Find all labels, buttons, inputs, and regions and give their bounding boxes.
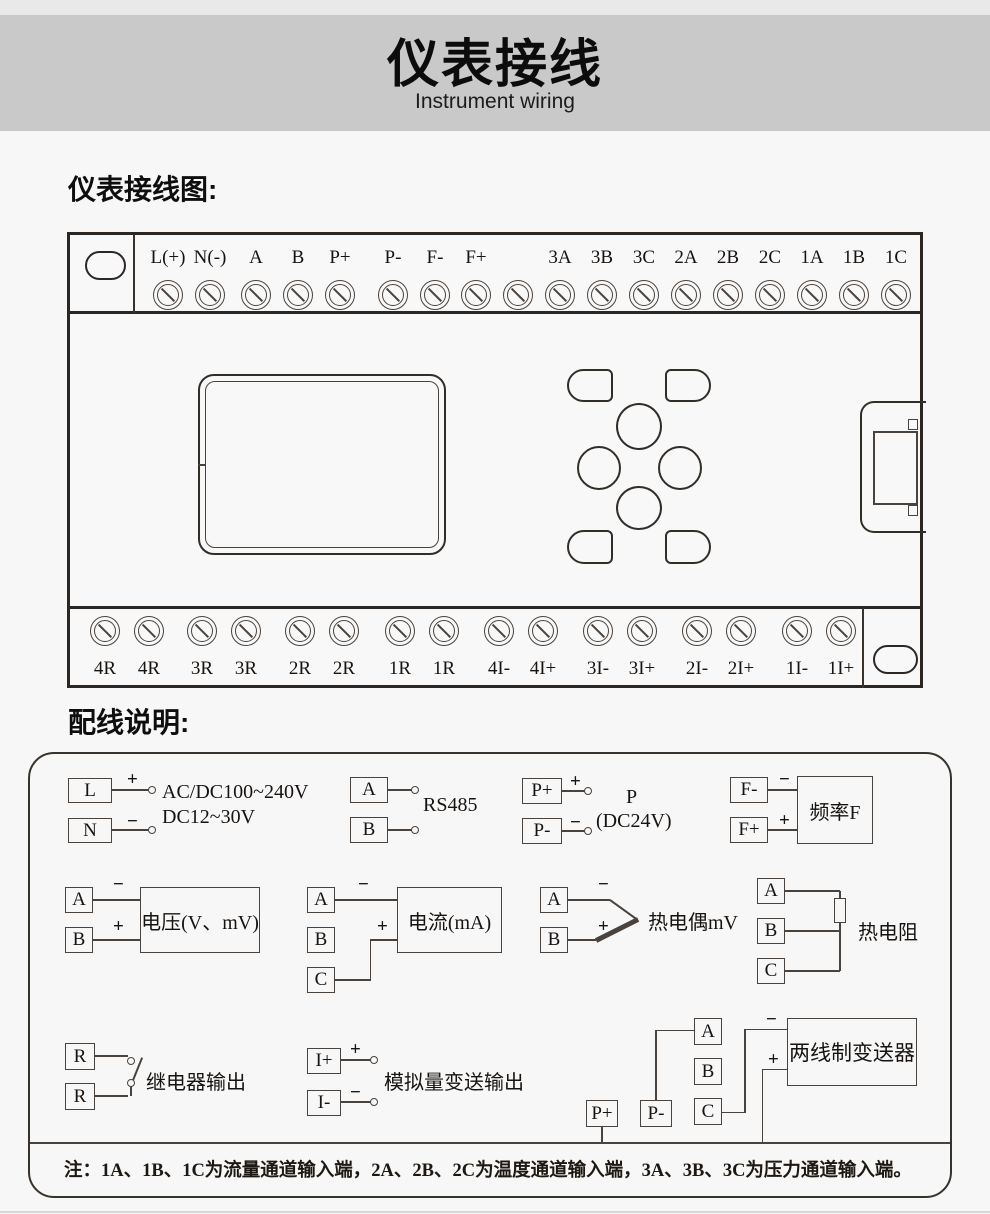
terminal-label: 1C (873, 247, 919, 269)
terminal-screw-icon (241, 280, 271, 310)
wire (371, 939, 397, 941)
wire-node (370, 1098, 378, 1106)
terminal-label: 4R (82, 658, 128, 680)
device-outline: L(+)N(-)ABP+P-F-F+3A3B3C2A2B2C1A1B1C 4R4… (67, 232, 923, 688)
terminal-box-label: C (315, 969, 328, 991)
terminal-screw-icon (195, 280, 225, 310)
terminal-box-label: A (701, 1021, 715, 1043)
terminal-label: 2A (663, 247, 709, 269)
device-box-label: 两线制变送器 (789, 1037, 915, 1067)
key-bottom-right-button (665, 530, 711, 564)
terminal-screw-icon (587, 280, 617, 310)
power-out-voltage: (DC24V) (596, 810, 672, 833)
plus-sign: + (127, 770, 138, 789)
terminal-label: 3C (621, 247, 667, 269)
rs485-label: RS485 (423, 794, 477, 817)
wire (655, 1030, 695, 1032)
terminal-box-B: B (307, 927, 335, 953)
terminal-label: P- (370, 247, 416, 269)
terminal-label: F+ (453, 247, 499, 269)
terminal-label: 1I- (774, 658, 820, 680)
mounting-hole-top (85, 251, 126, 280)
terminal-box-label: F+ (738, 819, 759, 841)
terminal-box-A: A (694, 1018, 722, 1045)
terminal-label: 1R (421, 658, 467, 680)
key-top-right-button (665, 369, 711, 402)
terminal-screw-icon (378, 280, 408, 310)
terminal-label: 4I- (476, 658, 522, 680)
wire (95, 1095, 128, 1097)
terminal-box-label: C (765, 960, 778, 982)
wire (785, 930, 840, 932)
minus-sign: − (358, 875, 369, 894)
power-range-line1: AC/DC100~240V (162, 781, 308, 804)
terminal-box-B: B (540, 927, 568, 953)
wire (95, 1055, 128, 1057)
wire (568, 939, 596, 941)
terminal-box-label: B (73, 929, 86, 951)
terminal-box-label: R (74, 1046, 87, 1068)
terminal-box-label: F- (741, 779, 758, 801)
terminal-box-label: N (83, 820, 97, 842)
wiring-diagram-heading: 仪表接线图: (68, 168, 217, 208)
wire (568, 899, 610, 901)
terminal-label: P+ (317, 247, 363, 269)
terminal-screw-icon (187, 616, 217, 646)
note-text: 注：1A、1B、1C为流量通道输入端，2A、2B、2C为温度通道输入端，3A、3… (64, 1156, 944, 1182)
terminal-box-B: B (65, 927, 93, 953)
top-terminal-divider (70, 311, 920, 314)
terminal-box-A: A (65, 887, 93, 913)
page-subtitle: Instrument wiring (0, 90, 990, 114)
display-edge-mark (198, 464, 206, 466)
terminal-screw-icon (713, 280, 743, 310)
terminal-box-label: R (74, 1086, 87, 1108)
page: 仪表接线 Instrument wiring 仪表接线图: L(+)N(-)AB… (0, 0, 990, 1214)
thermocouple-label: 热电偶mV (648, 906, 738, 935)
terminal-box-C: C (307, 967, 335, 993)
terminal-box-label: P+ (591, 1103, 612, 1125)
terminal-box-P-minus: P- (640, 1100, 672, 1127)
terminal-label: 3A (537, 247, 583, 269)
terminal-box-A: A (757, 878, 785, 904)
terminal-screw-icon (153, 280, 183, 310)
device-box-label: 电流(mA) (408, 906, 491, 935)
terminal-box-B: B (757, 918, 785, 944)
terminal-screw-icon (420, 280, 450, 310)
terminal-label: 1R (377, 658, 423, 680)
wire (335, 979, 371, 981)
top-strip (0, 0, 990, 15)
device-box-label: 电压(V、mV) (141, 906, 259, 935)
wire (130, 1086, 132, 1096)
terminal-label: 1A (789, 247, 835, 269)
terminal-screw-icon (545, 280, 575, 310)
terminal-screw-icon (134, 616, 164, 646)
terminal-screw-icon (755, 280, 785, 310)
terminal-box-label: A (362, 779, 376, 801)
terminal-box-I-plus: I+ (307, 1048, 341, 1074)
wire (839, 923, 841, 971)
terminal-box-B: B (350, 817, 388, 843)
wire (785, 970, 840, 972)
plus-sign: + (768, 1050, 779, 1069)
terminal-box-label: P+ (531, 780, 552, 802)
terminal-screw-icon (671, 280, 701, 310)
plus-sign: + (598, 917, 609, 936)
terminal-box-label: B (702, 1061, 715, 1083)
connector-notch-bottom (908, 505, 918, 516)
terminal-label: N(-) (187, 247, 233, 269)
terminal-label: 4I+ (520, 658, 566, 680)
key-top-left-button (567, 369, 613, 402)
resistor-symbol (834, 898, 846, 923)
terminal-screw-icon (627, 616, 657, 646)
terminal-label: 2I+ (718, 658, 764, 680)
plus-sign: + (779, 811, 790, 830)
device-box-label: 频率F (809, 796, 860, 825)
power-out-label: P (626, 786, 637, 809)
page-bottom-rule (0, 1211, 990, 1213)
wire (602, 1142, 763, 1144)
terminal-label: 4R (126, 658, 172, 680)
up-key-button (616, 403, 662, 450)
minus-sign: − (113, 875, 124, 894)
terminal-box-F-plus: F+ (730, 817, 768, 843)
wire-node (148, 786, 156, 794)
page-title: 仪表接线 (0, 15, 990, 94)
terminal-box-label: B (363, 819, 376, 841)
wiring-notes-heading: 配线说明: (68, 701, 189, 741)
terminal-box-C: C (757, 958, 785, 984)
terminal-label: 3R (179, 658, 225, 680)
connector-notch-top (908, 419, 918, 430)
frequency-device-box: 频率F (797, 776, 873, 844)
wire (762, 1069, 764, 1143)
terminal-screw-icon (583, 616, 613, 646)
minus-sign: − (598, 875, 609, 894)
note-separator (30, 1142, 950, 1144)
terminal-screw-icon (839, 280, 869, 310)
terminal-label: 2B (705, 247, 751, 269)
analog-out-label: 模拟量变送输出 (384, 1066, 524, 1095)
terminal-box-label: A (764, 880, 778, 902)
terminal-box-B: B (694, 1058, 722, 1085)
terminal-screw-icon (629, 280, 659, 310)
terminal-box-label: P- (534, 820, 551, 842)
terminal-label: 3B (579, 247, 625, 269)
terminal-box-label: A (72, 889, 86, 911)
terminal-box-label: L (84, 780, 96, 802)
wire-node (584, 787, 592, 795)
plus-sign: + (350, 1040, 361, 1059)
wire (785, 890, 840, 892)
terminal-label: B (275, 247, 321, 269)
wire-node (411, 826, 419, 834)
terminal-label: 2R (277, 658, 323, 680)
switch-contact (127, 1057, 135, 1065)
top-left-compartment-divider (133, 235, 135, 313)
key-bottom-left-button (567, 530, 613, 564)
terminal-box-label: A (314, 889, 328, 911)
wire (93, 899, 140, 901)
terminal-label: 1B (831, 247, 877, 269)
terminal-box-P-minus: P- (522, 818, 562, 844)
side-connector (860, 401, 926, 533)
plus-sign: + (570, 772, 581, 791)
terminal-box-C: C (694, 1098, 722, 1125)
terminal-label: 1I+ (818, 658, 864, 680)
wire-node (411, 786, 419, 794)
bottom-terminal-divider (70, 606, 920, 609)
terminal-box-label: P- (648, 1103, 665, 1125)
terminal-box-F-minus: F- (730, 777, 768, 803)
terminal-box-R: R (65, 1043, 95, 1070)
terminal-label: 2R (321, 658, 367, 680)
wire-node (148, 826, 156, 834)
terminal-label: 2C (747, 247, 793, 269)
terminal-screw-icon (231, 616, 261, 646)
terminal-box-A: A (540, 887, 568, 913)
terminal-screw-icon (503, 280, 533, 310)
terminal-box-P-plus: P+ (522, 778, 562, 804)
wire (335, 899, 397, 901)
minus-sign: − (779, 770, 790, 789)
wire (370, 939, 372, 980)
terminal-box-P-plus: P+ (586, 1100, 618, 1127)
terminal-label: 2I- (674, 658, 720, 680)
terminal-label: A (233, 247, 279, 269)
terminal-screw-icon (329, 616, 359, 646)
terminal-screw-icon (285, 616, 315, 646)
minus-sign: − (570, 813, 581, 832)
side-connector-slot (873, 431, 918, 505)
terminal-screw-icon (461, 280, 491, 310)
terminal-box-label: C (702, 1101, 715, 1123)
wire (388, 789, 412, 791)
terminal-screw-icon (429, 616, 459, 646)
terminal-box-label: A (547, 889, 561, 911)
terminal-screw-icon (90, 616, 120, 646)
mounting-hole-bottom (873, 645, 918, 674)
terminal-label: 3R (223, 658, 269, 680)
down-key-button (616, 486, 662, 530)
transmitter-device-box: 两线制变送器 (787, 1018, 917, 1086)
terminal-box-A: A (307, 887, 335, 913)
plus-sign: + (377, 917, 388, 936)
terminal-box-N: N (68, 818, 112, 843)
power-range-line2: DC12~30V (162, 806, 255, 829)
wire-node (370, 1056, 378, 1064)
terminal-box-label: B (548, 929, 561, 951)
minus-sign: − (350, 1083, 361, 1102)
terminal-box-A: A (350, 777, 388, 803)
terminal-box-label: B (765, 920, 778, 942)
wire (388, 829, 412, 831)
header-banner: 仪表接线 Instrument wiring (0, 15, 990, 131)
wire (601, 1127, 603, 1143)
terminal-screw-icon (528, 616, 558, 646)
wire (93, 939, 140, 941)
wire (744, 1029, 746, 1113)
wire-node (584, 827, 592, 835)
rtd-label: 热电阻 (858, 916, 918, 945)
display-panel-inner (205, 381, 439, 548)
plus-sign: + (113, 917, 124, 936)
terminal-screw-icon (726, 616, 756, 646)
wire (655, 1030, 657, 1100)
terminal-screw-icon (826, 616, 856, 646)
minus-sign: − (127, 812, 138, 831)
terminal-box-label: I+ (315, 1050, 332, 1072)
terminal-label: 3I- (575, 658, 621, 680)
terminal-screw-icon (484, 616, 514, 646)
terminal-screw-icon (325, 280, 355, 310)
terminal-box-R: R (65, 1083, 95, 1110)
terminal-label: F- (412, 247, 458, 269)
terminal-screw-icon (283, 280, 313, 310)
terminal-box-L: L (68, 778, 112, 803)
terminal-screw-icon (782, 616, 812, 646)
relay-label: 继电器输出 (146, 1066, 246, 1095)
left-key-button (577, 446, 621, 490)
wire (722, 1112, 746, 1114)
terminal-box-label: I- (318, 1092, 331, 1114)
terminal-label: 3I+ (619, 658, 665, 680)
terminal-label: L(+) (145, 247, 191, 269)
current-device-box: 电流(mA) (397, 887, 502, 953)
terminal-box-I-minus: I- (307, 1090, 341, 1116)
terminal-screw-icon (682, 616, 712, 646)
minus-sign: − (766, 1010, 777, 1029)
terminal-screw-icon (881, 280, 911, 310)
terminal-screw-icon (797, 280, 827, 310)
terminal-screw-icon (385, 616, 415, 646)
voltage-device-box: 电压(V、mV) (140, 887, 260, 953)
right-key-button (658, 446, 702, 490)
terminal-box-label: B (315, 929, 328, 951)
